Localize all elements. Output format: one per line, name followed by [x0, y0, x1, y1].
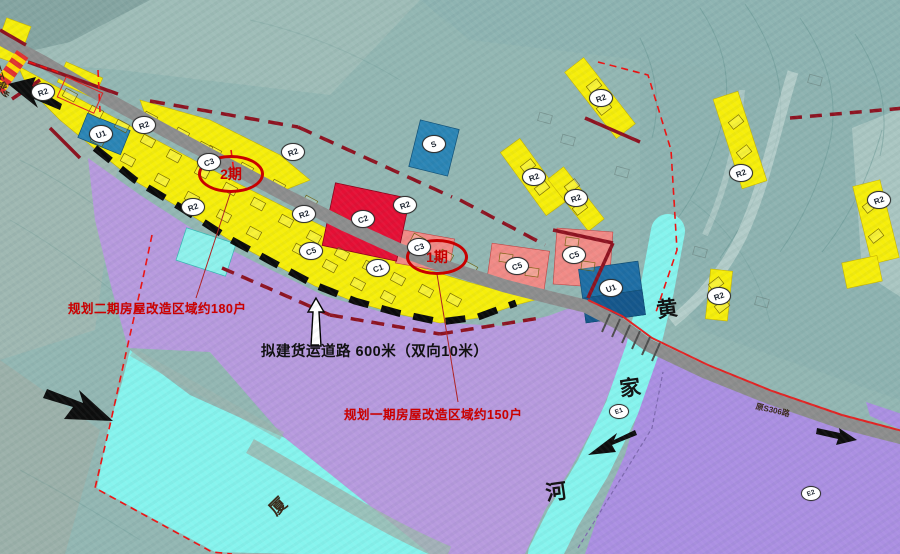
zone-code-text: R2 — [528, 171, 541, 183]
zone-label-C5: C5 — [562, 246, 586, 264]
zone-label-C5: C5 — [299, 242, 323, 260]
zone-label-R2: R2 — [292, 205, 316, 223]
zone-code-text: C3 — [203, 156, 216, 168]
zone-code-text: R2 — [287, 146, 300, 158]
zone-code-text: E2 — [806, 489, 816, 498]
zone-label-R2: R2 — [132, 116, 156, 134]
river-name-char-1: 黄 — [655, 292, 680, 325]
zone-code-text: C2 — [357, 213, 370, 225]
zone-label-U1: U1 — [89, 125, 113, 143]
zone-code-text: R2 — [570, 192, 583, 204]
zone-code-text: C3 — [413, 241, 426, 253]
zone-label-C1: C1 — [366, 259, 390, 277]
zone-label-R2: R2 — [522, 168, 546, 186]
zone-label-R2: R2 — [867, 191, 891, 209]
zone-code-text: R2 — [187, 201, 200, 213]
phase1-note: 规划一期房屋改造区域约150户 — [344, 404, 522, 423]
zone-code-text: R2 — [298, 208, 311, 220]
river-name-char-3: 河 — [544, 475, 569, 508]
zone-label-R2: R2 — [281, 143, 305, 161]
phase2-note: 规划二期房屋改造区域约180户 — [68, 298, 246, 317]
zone-label-C3: C3 — [197, 153, 221, 171]
zone-label-E2: E2 — [801, 486, 821, 501]
zone-code-text: R2 — [595, 92, 608, 104]
zone-code-text: C5 — [511, 260, 524, 272]
freight-road-note: 拟建货运道路 600米（双向10米） — [261, 340, 488, 361]
zone-code-text: R2 — [138, 119, 151, 131]
zone-label-E1: E1 — [609, 404, 629, 419]
zone-code-text: C5 — [568, 249, 581, 261]
phase2-label: 2期 — [220, 164, 242, 184]
river-name-char-2: 家 — [618, 371, 643, 404]
zone-code-text: C1 — [372, 262, 385, 274]
zone-label-S: S — [422, 135, 446, 153]
zone-label-R2: R2 — [589, 89, 613, 107]
zone-code-text: E1 — [614, 407, 624, 416]
zone-code-text: R2 — [399, 199, 412, 211]
zone-label-R2: R2 — [31, 83, 55, 101]
zone-code-text: S — [430, 139, 438, 149]
zone-label-C2: C2 — [351, 210, 375, 228]
zone-code-text: R2 — [873, 194, 886, 206]
zone-code-text: R2 — [713, 290, 726, 302]
zone-label-C3: C3 — [407, 238, 431, 256]
zone-label-U1: U1 — [599, 279, 623, 297]
zone-code-text: U1 — [605, 282, 618, 294]
zone-code-text: R2 — [37, 86, 50, 98]
zone-code-text: C5 — [305, 245, 318, 257]
zone-label-R2: R2 — [181, 198, 205, 216]
zone-label-R2: R2 — [564, 189, 588, 207]
zone-label-R2: R2 — [393, 196, 417, 214]
zone-label-R2: R2 — [729, 164, 753, 182]
zone-label-R2: R2 — [707, 287, 731, 305]
zone-code-text: U1 — [95, 128, 108, 140]
zone-code-text: R2 — [735, 167, 748, 179]
planning-map: 2期 1期 规划二期房屋改造区域约180户 拟建货运道路 600米（双向10米）… — [0, 0, 900, 554]
map-canvas — [0, 0, 900, 554]
zone-label-C5: C5 — [505, 257, 529, 275]
